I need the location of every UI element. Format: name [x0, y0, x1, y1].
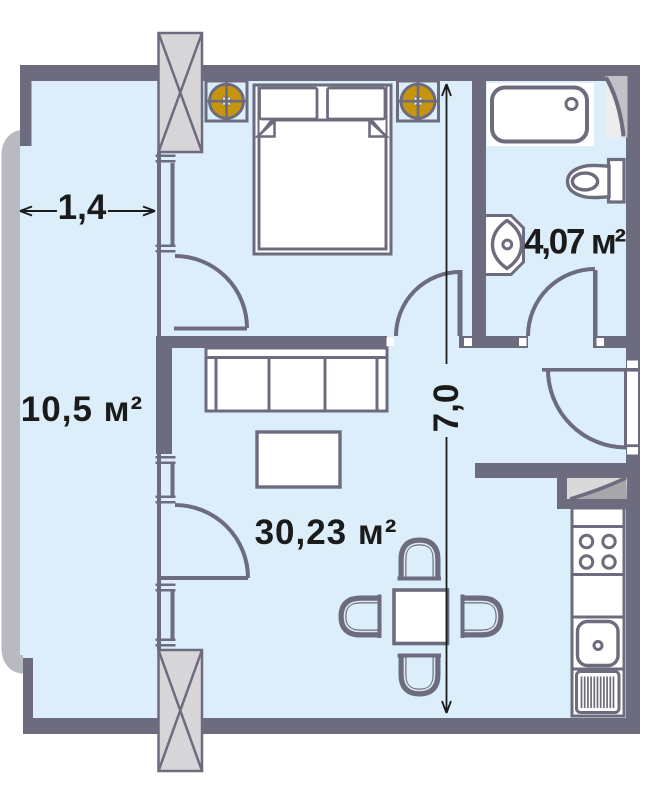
- svg-text:4,07 м²: 4,07 м²: [524, 223, 626, 262]
- svg-text:30,23 м²: 30,23 м²: [255, 513, 398, 552]
- svg-text:7,0: 7,0: [427, 384, 466, 433]
- svg-text:1,4: 1,4: [58, 188, 107, 227]
- svg-text:10,5 м²: 10,5 м²: [21, 390, 143, 429]
